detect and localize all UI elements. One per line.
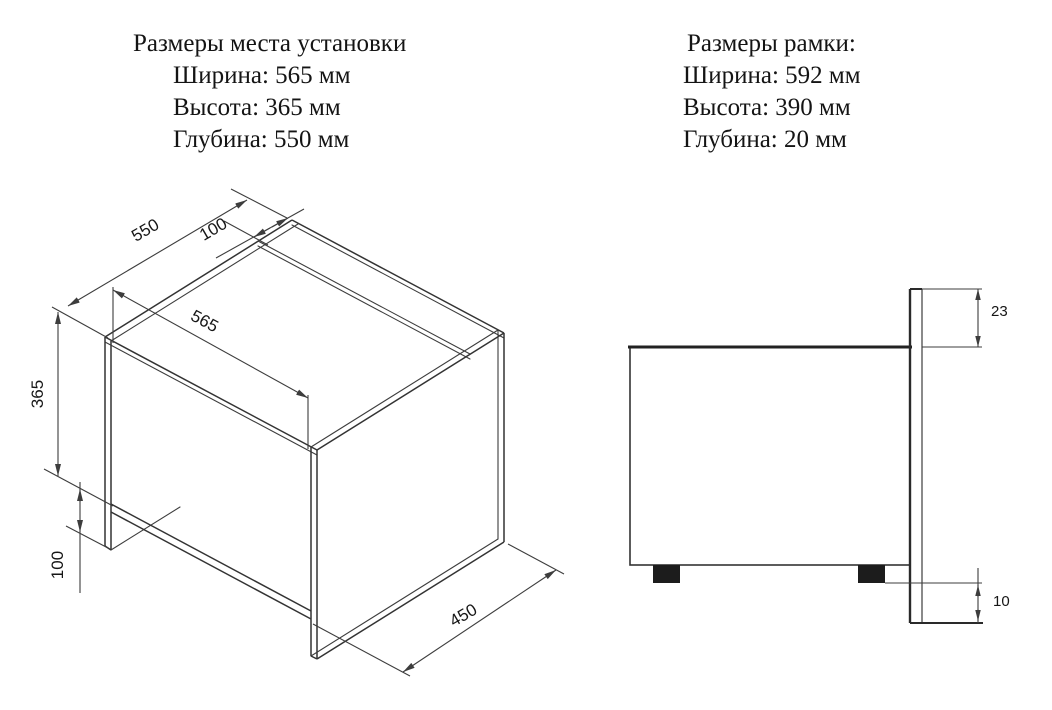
top-frame — [105, 220, 504, 455]
installation-height-line: Высота: 365 мм — [133, 92, 406, 124]
dim-label-365: 365 — [28, 380, 47, 408]
frame-depth-line: Глубина: 20 мм — [683, 124, 861, 156]
dim-label-550: 550 — [128, 215, 162, 246]
dim-label-10: 10 — [993, 593, 1010, 610]
installation-dimensions-title: Размеры места установки — [133, 28, 406, 60]
installation-dimensions-block: Размеры места установки Ширина: 565 мм В… — [133, 28, 406, 156]
left-side-panel — [105, 220, 298, 550]
installation-depth-line: Глубина: 550 мм — [133, 124, 406, 156]
dim-label-23: 23 — [991, 303, 1008, 320]
frame-width-line: Ширина: 592 мм — [683, 60, 861, 92]
bottom-shelf — [111, 504, 311, 619]
dim-label-bottom-100: 100 — [48, 551, 67, 579]
frame-dimensions-title: Размеры рамки: — [683, 28, 861, 60]
frame-strip — [910, 289, 983, 623]
frame-height-line: Высота: 390 мм — [683, 92, 861, 124]
dim-label-top-100: 100 — [196, 214, 230, 245]
dimension-depth-550: 550 — [52, 189, 287, 338]
isometric-niche-diagram: 550 100 565 365 100 — [30, 180, 590, 700]
dimension-top-offset-100: 100 — [196, 209, 304, 258]
dim-label-450: 450 — [446, 600, 480, 631]
dimension-shelf-450: 450 — [313, 544, 564, 676]
dimension-height-365: 365 — [28, 312, 113, 506]
manual-page: Размеры места установки Ширина: 565 мм В… — [0, 0, 1052, 710]
dimension-top-overlap-23: 23 — [922, 289, 1008, 347]
front-foot — [653, 565, 680, 583]
dim-label-565: 565 — [188, 306, 222, 336]
installation-width-line: Ширина: 565 мм — [133, 60, 406, 92]
side-view-diagram: 23 10 — [590, 260, 1050, 660]
dimension-bottom-overlap-10: 10 — [885, 568, 1010, 623]
appliance-body — [628, 347, 912, 583]
frame-dimensions-block: Размеры рамки: Ширина: 592 мм Высота: 39… — [683, 28, 861, 156]
dimension-width-565: 565 — [113, 287, 308, 449]
rear-foot — [858, 565, 885, 583]
